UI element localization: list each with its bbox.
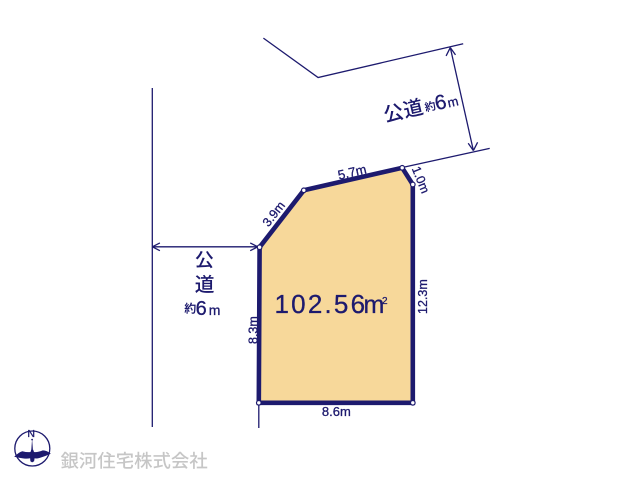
svg-text:6: 6: [196, 298, 207, 320]
svg-text:12.3m: 12.3m: [416, 279, 430, 314]
svg-text:102.56: 102.56: [275, 289, 368, 319]
svg-text:2: 2: [382, 296, 388, 307]
svg-text:m: m: [209, 302, 221, 318]
svg-text:N: N: [27, 428, 35, 440]
svg-text:8.6m: 8.6m: [322, 404, 351, 419]
svg-text:8.3m: 8.3m: [246, 316, 260, 344]
